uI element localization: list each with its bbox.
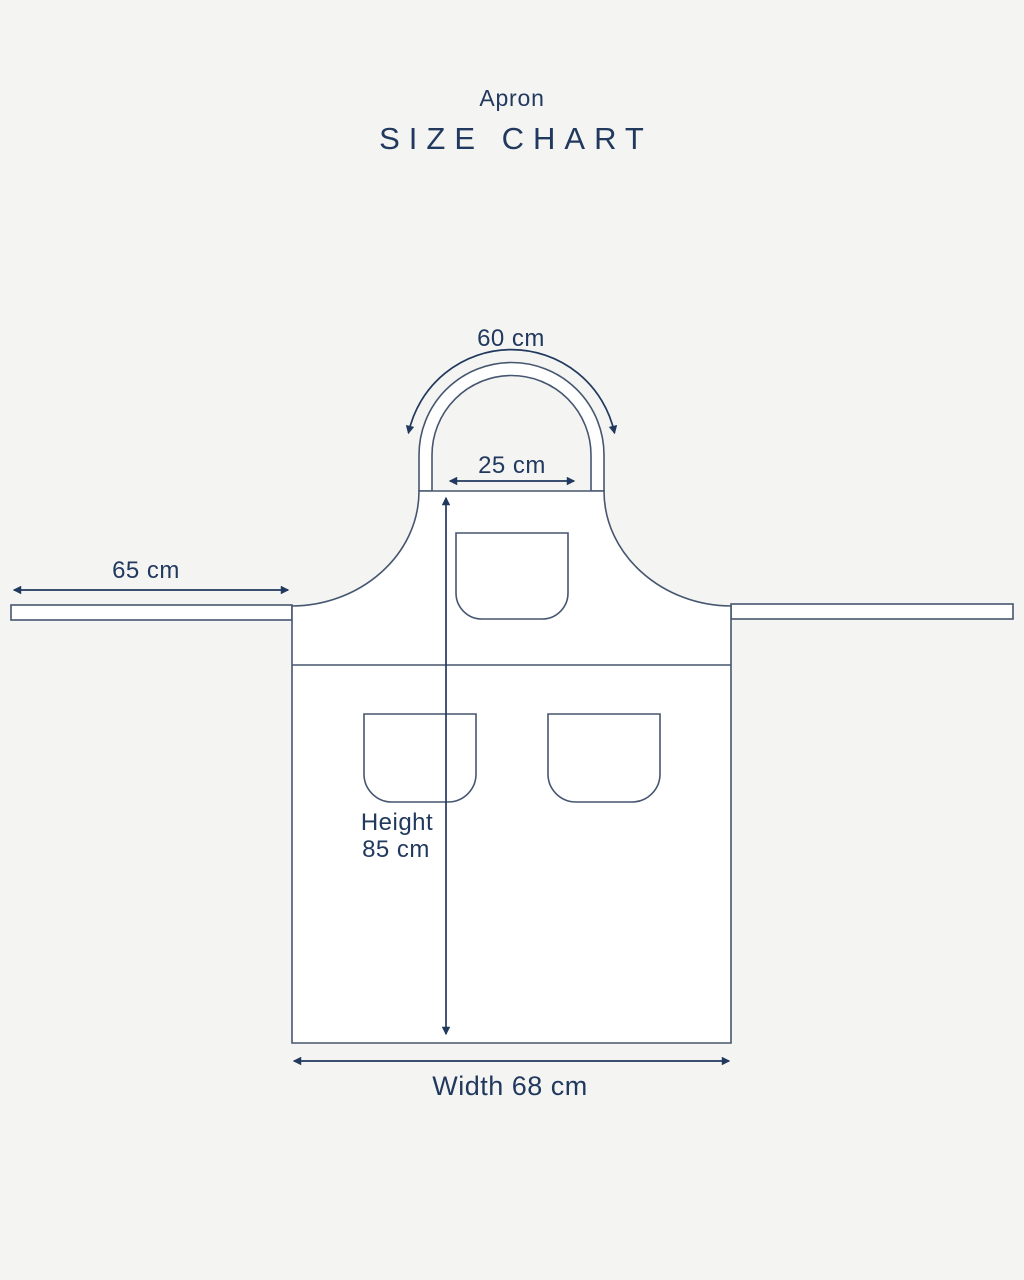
tie-length-label: 65 cm	[112, 557, 180, 584]
right-waist-tie	[731, 604, 1013, 619]
neck-strap-label: 60 cm	[477, 325, 545, 352]
lower-right-pocket	[548, 714, 660, 802]
lower-left-pocket	[364, 714, 476, 802]
width-label: Width 68 cm	[432, 1071, 588, 1101]
height-label-line2: 85 cm	[362, 836, 430, 863]
apron-size-chart-figure: Apron SIZE CHART 60 cm 25 cm	[0, 0, 1024, 1280]
bib-width-label: 25 cm	[478, 452, 546, 479]
size-chart-page: Apron SIZE CHART 60 cm 25 cm	[0, 0, 1024, 1280]
height-label-line1: Height	[361, 809, 433, 836]
page-title: Apron	[479, 85, 544, 111]
page-subtitle: SIZE CHART	[379, 121, 653, 156]
left-waist-tie	[11, 605, 292, 620]
chest-pocket	[456, 533, 568, 619]
